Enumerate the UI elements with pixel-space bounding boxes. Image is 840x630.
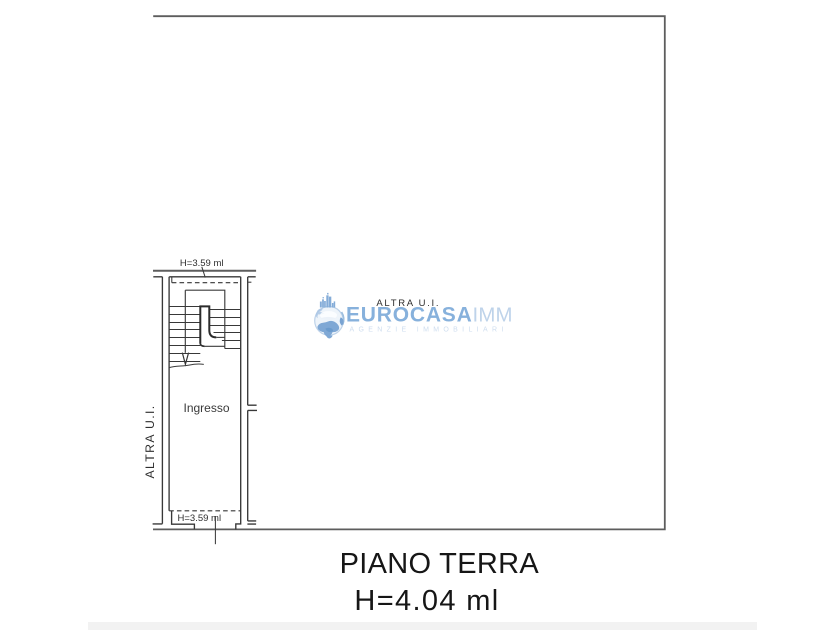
svg-text:Ingresso: Ingresso [184,401,230,415]
svg-text:ALTRA U.I.: ALTRA U.I. [376,298,440,309]
svg-text:H=4.04 ml: H=4.04 ml [354,585,499,617]
svg-text:H=3.59 ml: H=3.59 ml [178,513,222,524]
svg-text:PIANO TERRA: PIANO TERRA [340,548,540,580]
svg-text:AGENZIE IMMOBILIARI: AGENZIE IMMOBILIARI [350,327,508,334]
svg-text:ALTRA U.I.: ALTRA U.I. [143,404,157,478]
svg-text:IMM: IMM [473,305,513,327]
